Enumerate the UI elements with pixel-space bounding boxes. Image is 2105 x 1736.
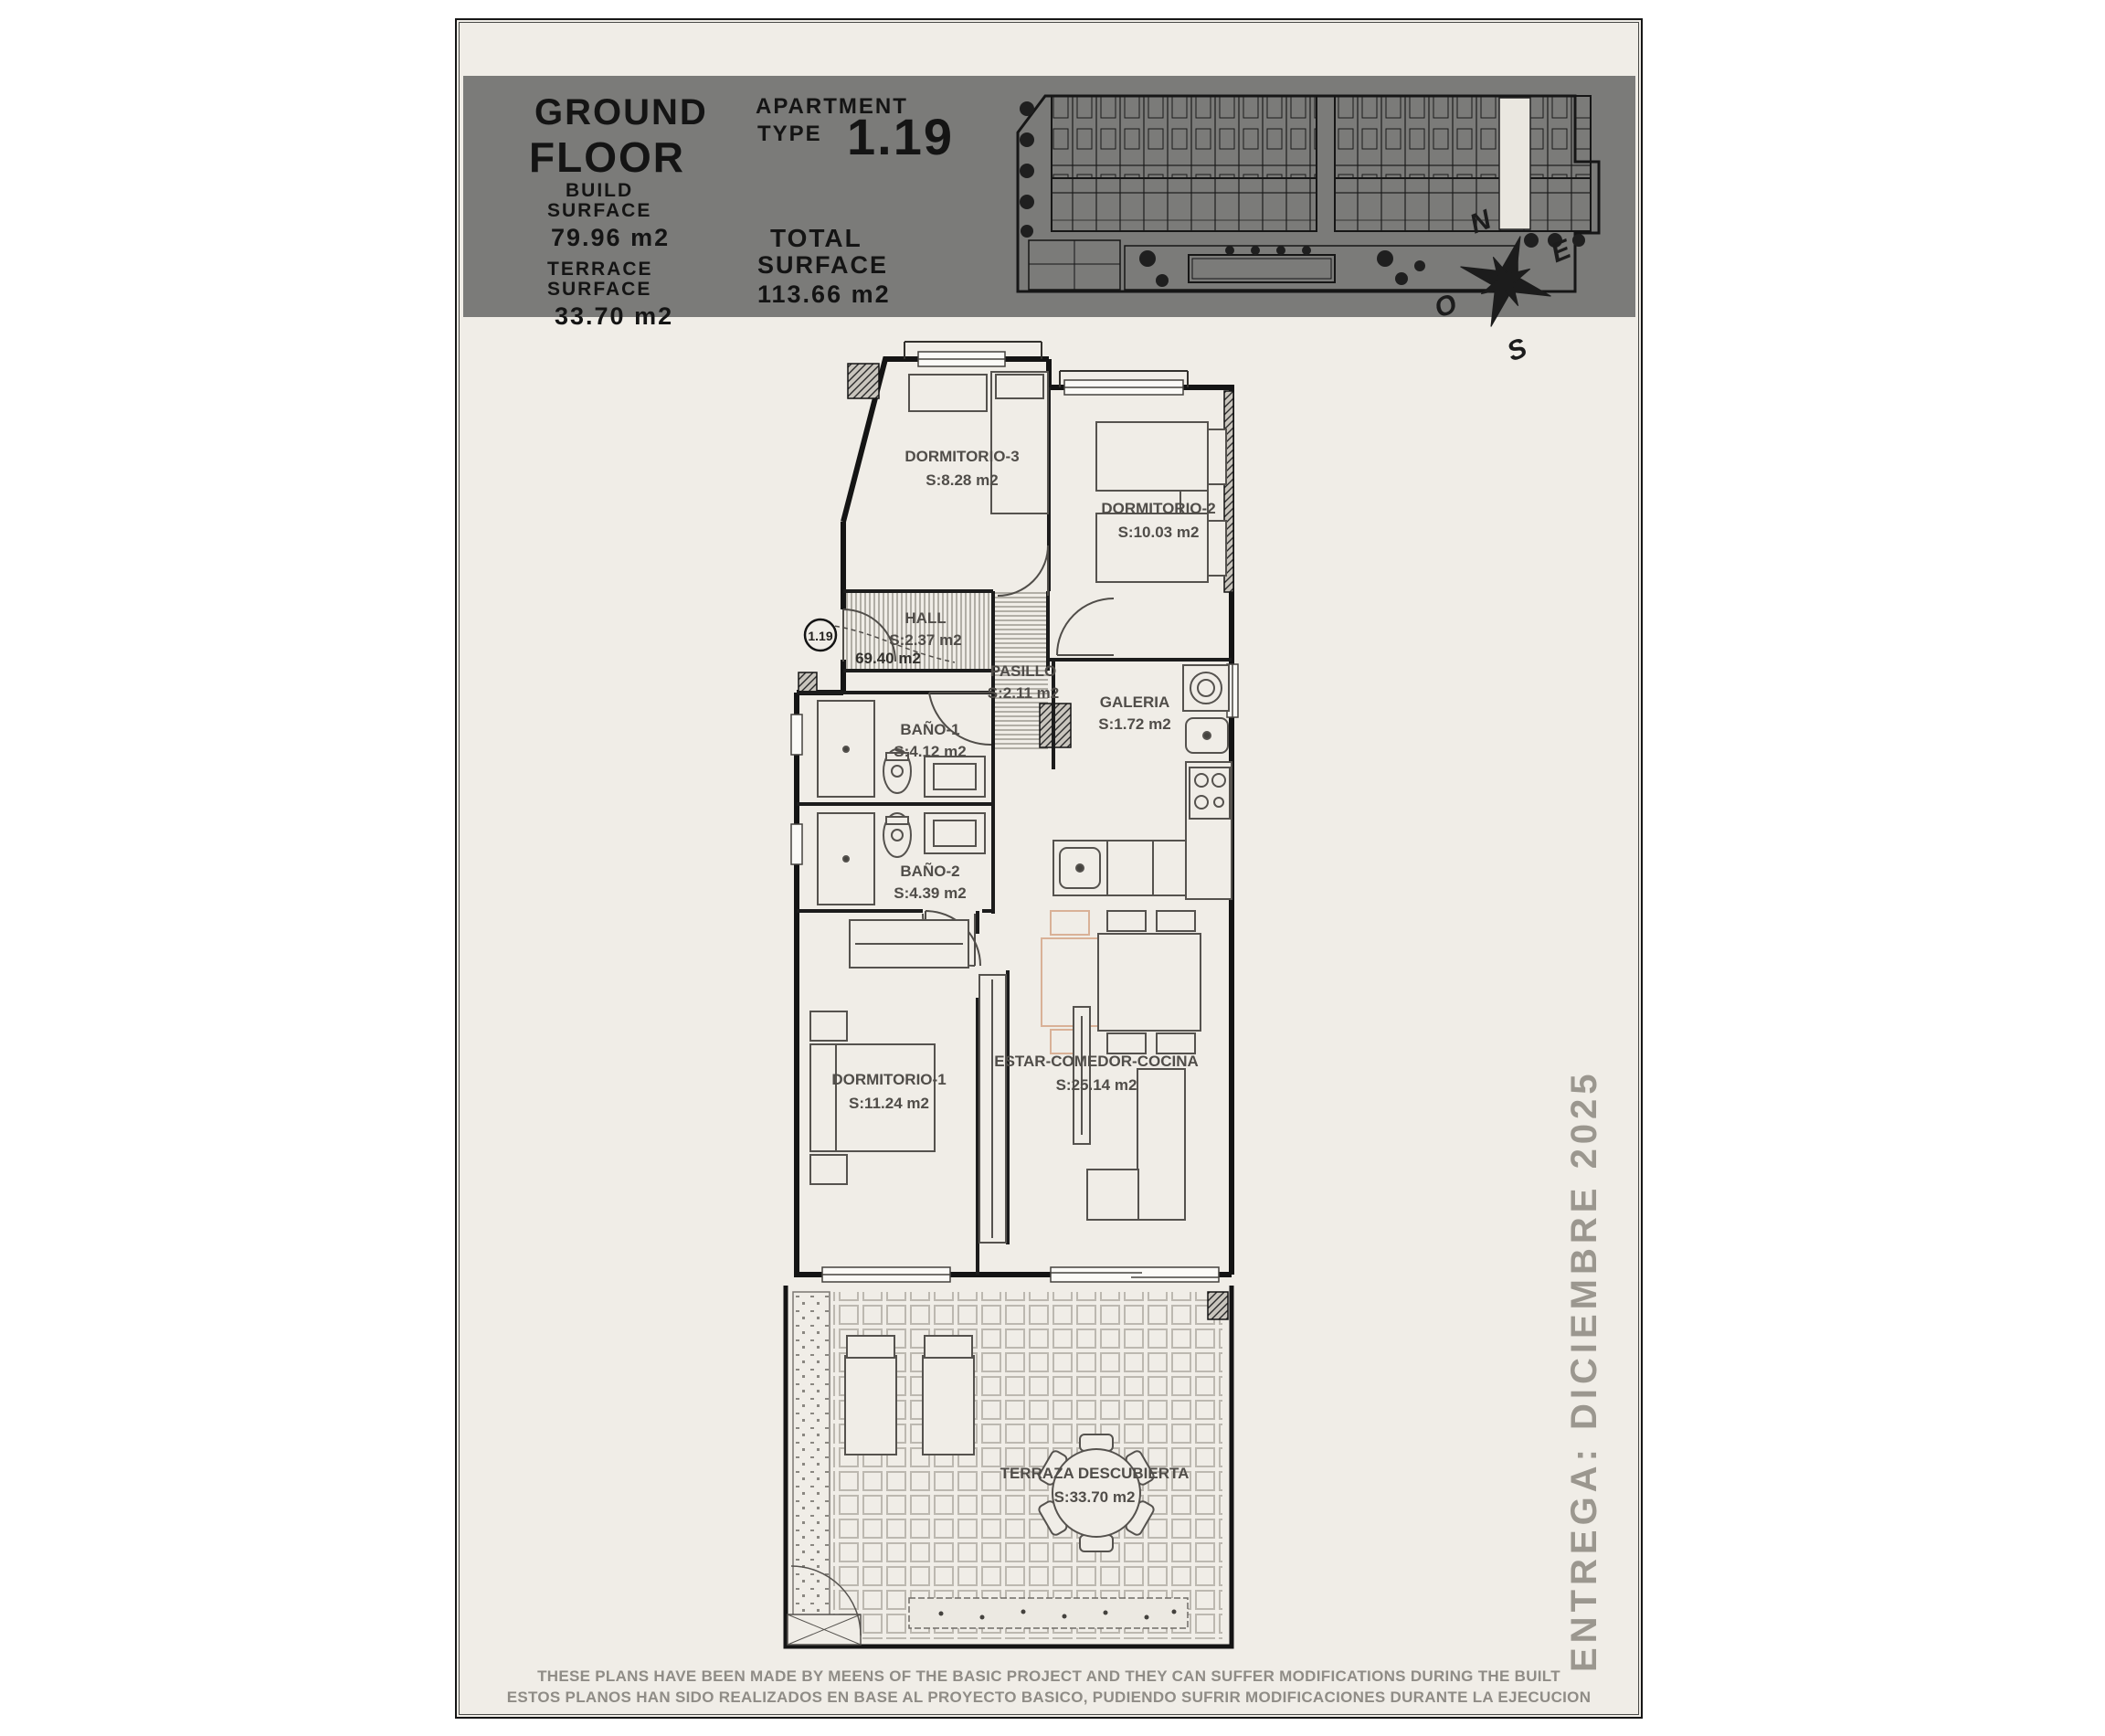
- floor-title-line1: GROUND: [534, 92, 708, 133]
- room-area: S:33.70 m2: [1054, 1488, 1136, 1506]
- build-surface-value: 79.96 m2: [551, 224, 670, 252]
- room-label: PASILLO: [990, 662, 1056, 680]
- room-area: S:10.03 m2: [1118, 524, 1200, 541]
- build-surface-label2: SURFACE: [547, 200, 651, 222]
- compass-east: E: [1547, 234, 1576, 269]
- plan-sheet: DORMITORIO-3 S:8.28 m2 DORMITORIO-2 S:10…: [455, 18, 1643, 1719]
- wall-insulation: [1208, 1292, 1228, 1319]
- compass-rose: N E O S: [1436, 203, 1582, 372]
- total-surface-label1: TOTAL: [770, 224, 862, 253]
- apartment-number: 1.19: [847, 107, 954, 166]
- planter: [909, 1598, 1188, 1628]
- room-label: DORMITORIO-2: [1101, 500, 1215, 517]
- terrace-surface-label1: TERRACE: [547, 259, 653, 281]
- room-label: TERRAZA DESCUBIERTA: [1000, 1465, 1190, 1482]
- terrace-surface-value: 33.70 m2: [555, 302, 673, 331]
- room-label: HALL: [904, 609, 946, 627]
- build-surface-label1: BUILD: [566, 180, 633, 202]
- unit-area-label: 69.40 m2: [855, 650, 921, 667]
- total-surface-label2: SURFACE: [757, 251, 888, 280]
- terrace-surface-label2: SURFACE: [547, 279, 651, 301]
- room-area: S:1.72 m2: [1098, 715, 1170, 733]
- room-label: BAÑO-1: [900, 720, 959, 738]
- room-label: GALERIA: [1100, 693, 1170, 711]
- room-label: DORMITORIO-3: [904, 448, 1019, 465]
- room-label: ESTAR-COMEDOR-COCINA: [994, 1053, 1199, 1070]
- room-label: BAÑO-2: [900, 862, 959, 880]
- room-area: S:2.11 m2: [988, 684, 1059, 702]
- unit-badge-number: 1.19: [808, 629, 832, 643]
- total-surface-value: 113.66 m2: [757, 281, 891, 309]
- room-area: S:4.39 m2: [894, 884, 966, 902]
- room-area: S:8.28 m2: [926, 471, 998, 489]
- room-area: S:11.24 m2: [849, 1095, 929, 1112]
- room-area: S:25.14 m2: [1056, 1076, 1137, 1094]
- apartment-type-label: TYPE: [757, 122, 822, 147]
- room-area: S:4.12 m2: [894, 743, 966, 760]
- compass-north: N: [1465, 204, 1497, 239]
- room-area: S:2.37 m2: [889, 631, 961, 649]
- floor-title-line2: FLOOR: [529, 132, 685, 182]
- room-label: DORMITORIO-1: [831, 1071, 946, 1088]
- compass-south: S: [1503, 333, 1531, 367]
